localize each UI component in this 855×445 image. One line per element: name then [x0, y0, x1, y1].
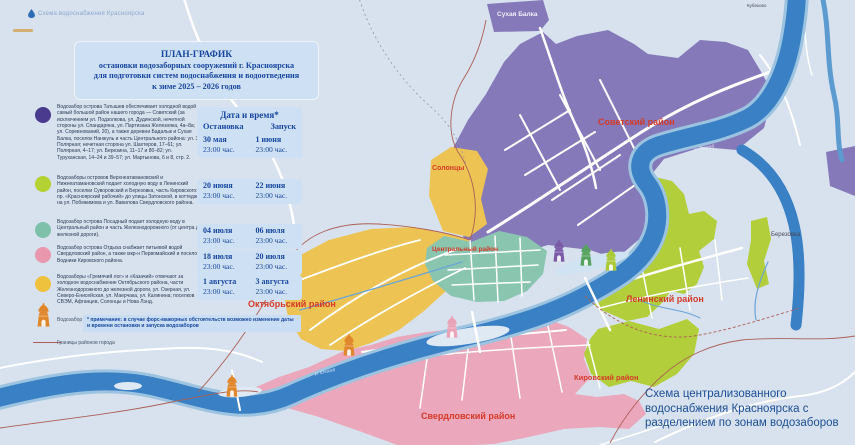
legend-swatch-atamanovsky [35, 176, 51, 192]
start-date: 1 июня [256, 135, 303, 145]
legend-borders-label: Границы районов города [57, 340, 115, 346]
note-box: * примечание: в случае форс-мажорных обс… [83, 315, 301, 332]
infographic-canvas: Сухая Балка Кубеково Советский район Сол… [0, 0, 855, 445]
note-text: * примечание: в случае форс-мажорных обс… [87, 317, 297, 330]
label-solontsy: Солонцы [432, 165, 464, 172]
label-oktyabrsky-district: Октябрьский район [248, 299, 336, 309]
legend-intake-label: Водозабор [57, 317, 82, 323]
watermark: Схема водоснабжения Красноярска [28, 9, 145, 18]
water-drop-icon [28, 9, 35, 18]
water-intake-icon-otdykha [447, 316, 458, 338]
start-date: 06 июля [256, 226, 303, 236]
title-line-1: ПЛАН-ГРАФИК [75, 49, 318, 61]
label-berezovka: Березовка [771, 232, 800, 238]
start-time: 23:00 час. [256, 191, 303, 201]
start-time: 23:00 час. [256, 145, 303, 155]
label-sovetsky-district: Советский район [598, 117, 675, 127]
schedule-col-stop: Остановка [203, 122, 243, 131]
title-line-3: для подготовки систем водоснабжения и во… [75, 71, 318, 82]
watermark-label: Схема водоснабжения Красноярска [38, 11, 145, 17]
legend-text-otdykha: Водозабор острова Отдыха снабжает питьев… [57, 245, 203, 264]
stop-time: 23:00 час. [203, 236, 250, 246]
label-kirovsky-district: Кировский район [574, 373, 638, 382]
legend-text-posadny: Водозабор острова Посадный подает холодн… [57, 219, 203, 238]
stop-date: 30 мая [203, 135, 250, 145]
legend-text-gremyachy: Водозаборы «Гремячий лог» и «Казачий» от… [57, 274, 203, 306]
stop-time: 23:00 час. [203, 191, 250, 201]
stop-date: 04 июля [203, 226, 250, 236]
title-line-2: остановки водозаборных сооружений г. Кра… [75, 61, 318, 72]
stop-time: 23:00 час. [203, 262, 250, 272]
legend-swatch-otdykha [35, 247, 51, 263]
stop-time: 23:00 час. [203, 287, 250, 297]
start-date: 20 июля [256, 252, 303, 262]
water-intake-legend-icon [35, 303, 52, 327]
legend-swatch-tatyshev [35, 107, 51, 123]
stop-date: 20 июня [203, 181, 250, 191]
schedule-row-3: 04 июля23:00 час. 06 июля23:00 час. [197, 224, 302, 249]
title-box: ПЛАН-ГРАФИК остановки водозаборных соору… [75, 42, 318, 99]
map-caption: Схема централизованного водоснабжения Кр… [645, 387, 855, 431]
watermark-dash [13, 29, 33, 32]
label-sukhaya-balka: Сухая Балка [497, 11, 538, 18]
title-line-4: к зиме 2025 – 2026 годов [75, 82, 318, 93]
label-kubekovo: Кубеково [747, 3, 766, 8]
legend-swatch-posadny [35, 222, 51, 238]
schedule-title: Дата и время* [197, 107, 302, 120]
zone-oktyabrsky-solontsy [429, 147, 488, 237]
label-leninsky-district: Ленинский район [626, 294, 704, 304]
start-time: 23:00 час. [256, 236, 303, 246]
stop-time: 23:00 час. [203, 145, 250, 155]
start-time: 23:00 час. [256, 262, 303, 272]
start-time: 23:00 час. [256, 287, 303, 297]
zone-berezovka [747, 217, 771, 289]
schedule-col-start: Запуск [270, 122, 296, 131]
schedule-row-4: 18 июля23:00 час. 20 июля23:00 час. [197, 250, 302, 275]
schedule-row-2: 20 июня23:00 час. 22 июня23:00 час. [197, 179, 302, 204]
stop-date: 18 июля [203, 252, 250, 262]
stop-date: 1 августа [203, 277, 250, 287]
start-date: 22 июня [256, 181, 303, 191]
legend-text-tatyshev: Водозабор острова Татышев обеспечивает х… [57, 104, 203, 161]
label-tsentralny-district: Центральный район [432, 246, 498, 253]
legend-swatch-gremyachy [35, 276, 51, 292]
legend-text-atamanovsky: Водозаборы островов Верхнеатамановский и… [57, 175, 203, 207]
start-date: 3 августа [256, 277, 303, 287]
water-intake-icon-kazachy [227, 375, 238, 397]
zone-sovetsky [452, 30, 773, 262]
schedule-row-5: 1 августа23:00 час. 3 августа23:00 час. [197, 275, 302, 300]
label-sverdlovsky-district: Свердловский район [421, 411, 515, 421]
schedule-row-1: 30 мая23:00 час. 1 июня23:00 час. [197, 133, 302, 158]
